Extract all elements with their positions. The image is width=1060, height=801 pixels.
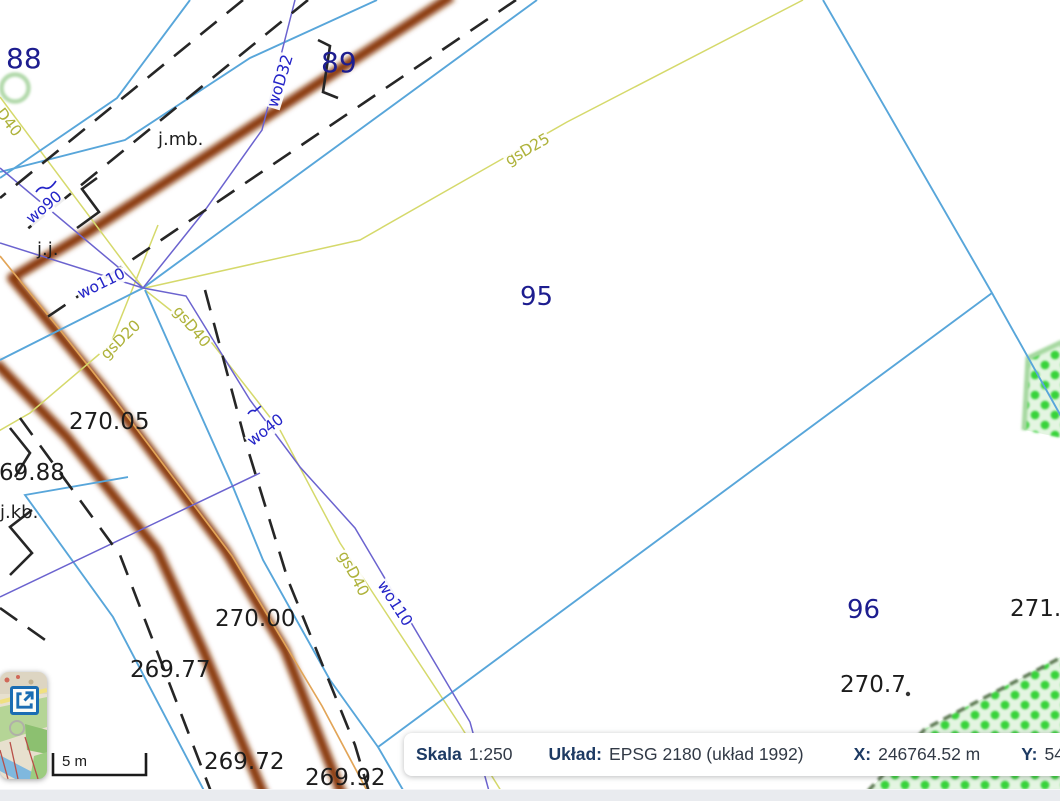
statusbar-scale: Skala 1:250: [416, 744, 513, 765]
x-label: X:: [854, 744, 872, 765]
gas-lines: [0, 0, 803, 800]
x-value: 246764.52 m: [878, 744, 980, 765]
elevation-label: 269.92: [305, 767, 385, 790]
statusbar-x-coordinate: X: 246764.52 m: [854, 744, 981, 765]
map-annotation: j.mb.: [158, 131, 203, 149]
scale-value: 1:250: [469, 744, 513, 765]
scalebar-label: 5 m: [62, 753, 87, 770]
elevation-label: 270.00: [215, 608, 295, 631]
y-value: 548: [1044, 744, 1060, 765]
crs-label: Układ:: [549, 744, 602, 765]
parcel-number: 96: [847, 597, 880, 623]
statusbar-crs: Układ: EPSG 2180 (układ 1992): [549, 744, 804, 765]
map-annotation: j.kb.: [0, 504, 38, 522]
expand-minimap-button[interactable]: [10, 686, 39, 715]
statusbar-y-coordinate: Y: 548: [1021, 744, 1060, 765]
elevation-label: 271.2: [1010, 598, 1060, 621]
elevation-label: 269.77: [130, 659, 210, 682]
tree-symbol: [2, 75, 29, 102]
statusbar: Skala 1:250 Układ: EPSG 2180 (układ 1992…: [404, 733, 1060, 776]
elevation-label: 69.88: [0, 462, 65, 485]
open-in-new-window-icon: [13, 689, 36, 712]
elevation-label: 270.05: [69, 411, 149, 434]
parcel-number: 88: [6, 45, 42, 73]
parcel-number: 89: [321, 49, 357, 77]
road-lines: [0, 0, 452, 800]
map-annotation: j.j.: [37, 241, 58, 259]
parcel-number: 95: [520, 284, 553, 310]
bottom-panel-edge: [0, 789, 1060, 801]
scale-label: Skala: [416, 744, 462, 765]
map-viewer: { "map": { "parcels": [ {"id": "88"}, {"…: [0, 0, 1060, 800]
crs-value: EPSG 2180 (układ 1992): [609, 744, 804, 765]
elevation-label: 270.7: [840, 674, 906, 697]
y-label: Y:: [1021, 744, 1037, 765]
water-lines: [0, 0, 492, 800]
elevation-label: 269.72: [204, 751, 284, 774]
elevation-point-dot: [906, 692, 910, 696]
